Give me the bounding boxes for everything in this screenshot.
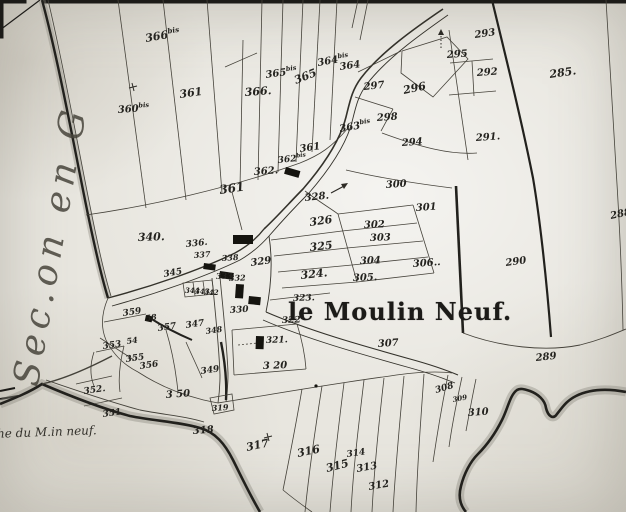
parcel-number: 363bis <box>338 117 372 135</box>
parcel-number: 285. <box>548 64 577 81</box>
parcel-number: 290 <box>504 255 527 269</box>
cadastral-map-sheet: 366bis361366.365bis365364bis364363bis293… <box>0 0 626 512</box>
parcel-number: 319 <box>211 402 229 413</box>
parcel-number: 308 <box>434 381 456 396</box>
parcel-number: 307 <box>377 338 399 350</box>
parcel-number: 345 <box>163 267 183 280</box>
parcel-number: 326 <box>309 213 334 229</box>
parcel-number: 361 <box>218 180 245 197</box>
parcel-number: 336. <box>185 238 208 250</box>
parcel-number: 302 <box>364 219 385 231</box>
parcel-number: 340. <box>138 230 165 244</box>
parcel-number: 294 <box>400 137 423 150</box>
parcel-number: 359 <box>122 306 143 319</box>
parcel-boundaries-right <box>456 0 626 348</box>
parcel-number: 356 <box>139 359 160 372</box>
parcel-number: 288 <box>608 207 626 222</box>
parcel-number: 301 <box>415 202 437 214</box>
parcel-number: 296 <box>401 79 427 97</box>
parcel-number: 309 <box>452 393 468 404</box>
parcel-number: 324. <box>300 266 328 282</box>
parcel-number: 58 <box>145 311 158 323</box>
parcel-number: 310 <box>467 407 489 419</box>
parcel-number: 318 <box>192 425 214 437</box>
parcel-number: 304 <box>360 255 381 267</box>
parcel-number: 291. <box>474 131 500 144</box>
parcel-number: 332 <box>229 272 246 283</box>
parcel-number: 315 <box>325 457 350 475</box>
parcel-number: 361 <box>299 141 321 155</box>
parcel-number: 366bis <box>144 25 181 45</box>
parcel-number: 293 <box>473 27 496 41</box>
parcel-number: 303 <box>370 232 391 244</box>
parcel-number: 305. <box>353 272 378 284</box>
parcel-number: 337 <box>193 249 211 260</box>
parcel-number: 366. <box>244 84 272 99</box>
parcel-number: 329 <box>250 255 272 269</box>
parcel-number: 292 <box>475 67 498 80</box>
parcel-number: 361 <box>179 85 204 101</box>
parcel-number: 351 <box>102 407 122 420</box>
parcel-number: 306.. <box>412 257 441 270</box>
parcel-number: 295 <box>445 49 468 62</box>
parcel-number: 360bis <box>117 101 150 116</box>
parcel-number: 3 50 <box>165 388 190 401</box>
parcel-number: 328. <box>304 190 329 203</box>
parcel-number: 289 <box>534 351 557 364</box>
parcel-number: 312 <box>368 478 391 492</box>
map-title-label: le Moulin Neuf. <box>288 297 512 326</box>
parcel-number: 342 <box>204 288 219 297</box>
parcel-number: 314 <box>346 447 366 460</box>
parcel-number: 352. <box>83 384 106 397</box>
parcel-number: 54 <box>126 334 139 346</box>
parcel-number: 325 <box>309 239 333 254</box>
parcel-number: 338 <box>221 252 239 263</box>
parcel-number: 298 <box>375 112 398 125</box>
parcel-number: 347 <box>185 318 206 331</box>
parcel-number: 297 <box>362 80 385 93</box>
parcel-number: 330 <box>230 305 250 316</box>
parcel-number: 317 <box>245 436 271 454</box>
parcel-number: 300 <box>385 179 407 191</box>
parcel-number: 3 20 <box>263 360 288 372</box>
parcel-number: 321. <box>266 335 288 346</box>
parcel-number: 316 <box>296 442 322 460</box>
parcel-number: 364 <box>339 59 361 73</box>
parcel-number: 348 <box>205 324 223 336</box>
parcel-number: 362. <box>253 165 278 178</box>
parcel-number: 349 <box>200 364 221 377</box>
